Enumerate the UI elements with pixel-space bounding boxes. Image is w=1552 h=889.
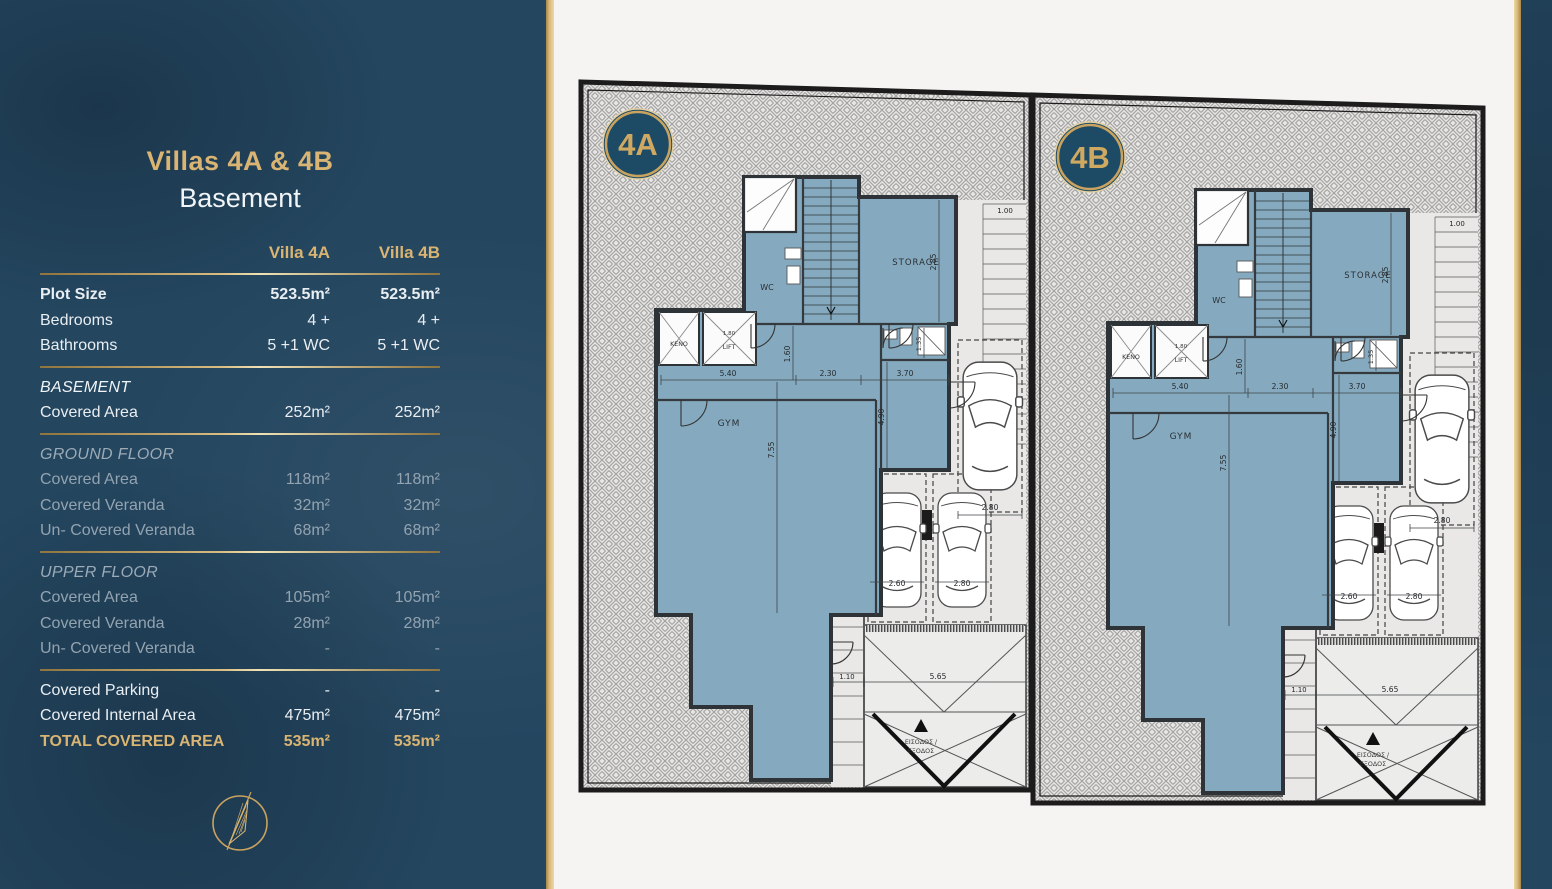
column-header-villa-4a: Villa 4A [226, 240, 330, 266]
row-value-4a: - [226, 636, 330, 662]
row-label: BASEMENT [40, 375, 226, 401]
row-label: TOTAL COVERED AREA [40, 729, 226, 755]
row-label: Un- Covered Veranda [40, 636, 226, 662]
table-row: Covered Internal Area475m²475m² [40, 703, 440, 729]
row-value-4a: 28m² [226, 611, 330, 637]
column-header-villa-4b: Villa 4B [330, 240, 440, 266]
row-value-4b: 28m² [330, 611, 440, 637]
table-row: Covered Area252m²252m² [40, 400, 440, 426]
row-label: Bathrooms [40, 333, 226, 359]
navy-edge-band [1521, 0, 1552, 889]
row-value-4a: - [226, 678, 330, 704]
row-value-4a [226, 560, 330, 586]
floor-plan-4a [581, 82, 1031, 790]
row-value-4a: 32m² [226, 493, 330, 519]
row-value-4b: 523.5m² [330, 282, 440, 308]
row-value-4b: 32m² [330, 493, 440, 519]
row-label: Covered Area [40, 585, 226, 611]
table-header: Villa 4A Villa 4B [40, 240, 440, 266]
villa-4a-badge: 4A [603, 109, 673, 179]
row-value-4b [330, 442, 440, 468]
floorplan-canvas: 1.00 [554, 0, 1514, 889]
row-label: Covered Area [40, 467, 226, 493]
table-row: Covered Veranda32m²32m² [40, 493, 440, 519]
row-label: Covered Internal Area [40, 703, 226, 729]
row-value-4b: 68m² [330, 518, 440, 544]
row-label: Covered Veranda [40, 611, 226, 637]
table-row: Plot Size523.5m²523.5m² [40, 282, 440, 308]
developer-logo [205, 788, 275, 858]
row-label: GROUND FLOOR [40, 442, 226, 468]
gold-stripe-right [1514, 0, 1521, 889]
row-value-4a: 252m² [226, 400, 330, 426]
floor-subtitle: Basement [40, 183, 440, 214]
site-plan-drawing: 1.00 [554, 0, 1514, 889]
table-row: Covered Parking-- [40, 678, 440, 704]
row-value-4a: 5 +1 WC [226, 333, 330, 359]
spec-table: Plot Size523.5m²523.5m²Bedrooms4 +4 +Bat… [40, 282, 440, 754]
section-header-row: UPPER FLOOR [40, 560, 440, 586]
row-value-4b: 475m² [330, 703, 440, 729]
row-value-4a: 4 + [226, 308, 330, 334]
gold-divider [40, 433, 440, 435]
row-value-4b [330, 560, 440, 586]
row-label: Covered Veranda [40, 493, 226, 519]
table-row: TOTAL COVERED AREA535m²535m² [40, 729, 440, 755]
row-label: Un- Covered Veranda [40, 518, 226, 544]
table-row: Un- Covered Veranda68m²68m² [40, 518, 440, 544]
gold-divider [40, 273, 440, 275]
row-label: UPPER FLOOR [40, 560, 226, 586]
gold-divider [40, 551, 440, 553]
row-value-4a: 523.5m² [226, 282, 330, 308]
row-label: Bedrooms [40, 308, 226, 334]
villa-4b-badge-label: 4B [1070, 140, 1110, 175]
brochure-page: Villas 4A & 4B Basement Villa 4A Villa 4… [0, 0, 1552, 889]
row-label: Covered Area [40, 400, 226, 426]
villa-4b-badge: 4B [1055, 122, 1125, 192]
table-row: Covered Area118m²118m² [40, 467, 440, 493]
section-header-row: BASEMENT [40, 375, 440, 401]
gold-stripe-left [546, 0, 554, 889]
floor-plan-4b [1033, 95, 1483, 803]
row-value-4b [330, 375, 440, 401]
row-value-4a: 105m² [226, 585, 330, 611]
row-value-4b: 252m² [330, 400, 440, 426]
row-value-4b: 105m² [330, 585, 440, 611]
row-label: Plot Size [40, 282, 226, 308]
row-value-4b: 535m² [330, 729, 440, 755]
row-value-4b: - [330, 636, 440, 662]
page-title: Villas 4A & 4B [40, 146, 440, 177]
villa-4a-badge-label: 4A [618, 127, 658, 162]
row-value-4a [226, 375, 330, 401]
row-value-4b: 5 +1 WC [330, 333, 440, 359]
row-value-4a: 535m² [226, 729, 330, 755]
logo-sail-icon [205, 788, 275, 858]
gold-divider [40, 366, 440, 368]
row-value-4a: 68m² [226, 518, 330, 544]
section-header-row: GROUND FLOOR [40, 442, 440, 468]
row-value-4a: 118m² [226, 467, 330, 493]
header-spacer [40, 240, 226, 266]
row-label: Covered Parking [40, 678, 226, 704]
table-row: Covered Veranda28m²28m² [40, 611, 440, 637]
row-value-4b: 4 + [330, 308, 440, 334]
row-value-4a [226, 442, 330, 468]
row-value-4b: 118m² [330, 467, 440, 493]
row-value-4b: - [330, 678, 440, 704]
table-row: Bathrooms5 +1 WC5 +1 WC [40, 333, 440, 359]
spec-panel: Villas 4A & 4B Basement Villa 4A Villa 4… [0, 0, 546, 889]
table-row: Bedrooms4 +4 + [40, 308, 440, 334]
table-row: Covered Area105m²105m² [40, 585, 440, 611]
table-row: Un- Covered Veranda-- [40, 636, 440, 662]
row-value-4a: 475m² [226, 703, 330, 729]
gold-divider [40, 669, 440, 671]
